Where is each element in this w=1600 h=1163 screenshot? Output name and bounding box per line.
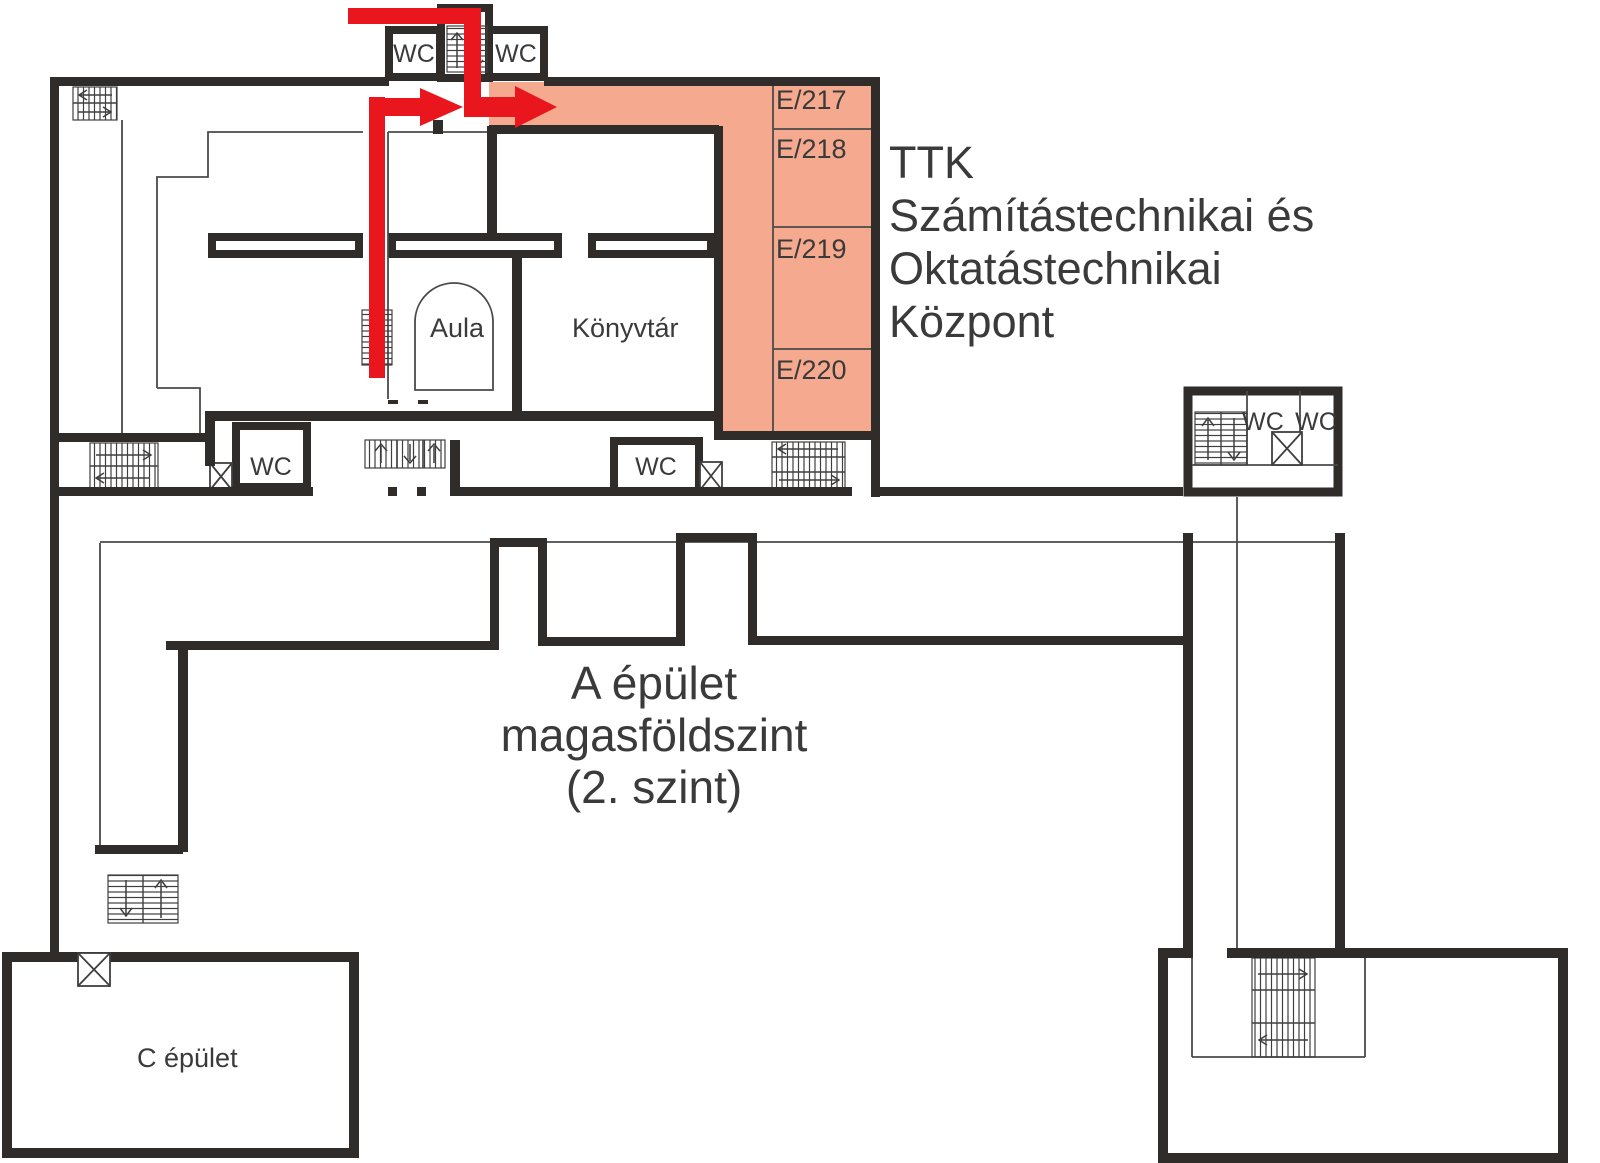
wall-corridor-bottom (489, 125, 719, 134)
wall-top-a (50, 77, 389, 86)
wall-h1 (54, 433, 205, 442)
route-entry-bar (348, 8, 481, 24)
label-e218: E/218 (776, 134, 847, 164)
wall-bottom-c (880, 487, 1183, 496)
elevator-icon-right-block (1272, 432, 1302, 465)
wall-aula-library (512, 253, 522, 415)
label-wc-tower-right: WC (495, 40, 537, 68)
wall-court-1 (166, 641, 499, 650)
door-post-1 (388, 487, 397, 496)
top-left-stair-icon (73, 87, 117, 120)
wall-band-3 (592, 237, 711, 254)
elevator-icon-left (210, 463, 232, 490)
ttk-annotation-line3: Oktatástechnikai (889, 243, 1222, 294)
label-e219: E/219 (776, 234, 847, 264)
wall-h2 (205, 411, 718, 421)
route-arrow1-stem (369, 97, 385, 378)
right-block-stair-icon (1195, 412, 1247, 465)
wall-se-top-b (1227, 948, 1568, 958)
route-arrow1-body (369, 98, 420, 116)
building-title-line1: A épület (571, 657, 737, 709)
door-post-2 (417, 487, 426, 496)
building-title-line2: magasföldszint (501, 709, 808, 761)
ttk-annotation-line2: Számítástechnikai és (889, 190, 1314, 241)
wall-bottom-b (450, 487, 852, 496)
wall-se-left (1158, 948, 1168, 1155)
wall-court-left-h (95, 845, 183, 854)
elevator-icon-c-building (78, 953, 110, 986)
ttk-annotation-line1: TTK (889, 137, 974, 188)
door-dash-1 (388, 400, 398, 404)
room-outlines (7, 8, 1338, 1153)
label-library: Könyvtár (572, 313, 679, 343)
stepped-room-line2 (157, 388, 200, 433)
wall-court-8 (748, 533, 757, 645)
label-wc-right-1: WC (1242, 408, 1284, 436)
label-aula: Aula (430, 313, 485, 343)
wall-w2 (487, 126, 497, 237)
wall-se-top-a (1158, 948, 1193, 958)
label-c-building: C épület (137, 1043, 238, 1073)
main-bottom-left-stair-icon (90, 443, 158, 490)
wall-court-3 (490, 538, 547, 547)
wall-bottom-a (54, 487, 313, 496)
label-wc-bottom-center: WC (635, 453, 677, 481)
wall-se-right (1558, 948, 1568, 1158)
wall-court-9 (748, 636, 1188, 645)
sw-stair-icon (108, 875, 178, 923)
e-wing-stair-icon (772, 442, 845, 488)
wall-rcorridor-left (1183, 533, 1193, 950)
wall-court-5 (538, 637, 685, 646)
wall-court-2 (490, 543, 499, 650)
wall-band-2 (392, 237, 558, 254)
wall-band-1 (212, 237, 359, 254)
ttk-wing (723, 128, 872, 439)
label-wc-tower-left: WC (393, 40, 435, 68)
label-e220: E/220 (776, 355, 847, 385)
entrance-stair-icon (365, 440, 445, 468)
ttk-annotation: TTK Számítástechnikai és Oktatástechnika… (889, 137, 1314, 347)
wall-v450 (450, 440, 460, 496)
wall-jamb (433, 120, 443, 134)
wall-se-bottom (1158, 1153, 1568, 1163)
label-wc-bottom-left: WC (250, 453, 292, 481)
label-wc-right-2: WC (1295, 408, 1337, 436)
wall-v205 (205, 421, 215, 466)
wall-court-6 (676, 538, 685, 646)
wall-rcorridor-right (1335, 533, 1345, 950)
wall-library-right (714, 126, 723, 439)
wall-court-left-l (178, 641, 188, 852)
se-stair-icon (1252, 958, 1315, 1057)
wall-outer-left (50, 77, 59, 952)
building-title: A épület magasföldszint (2. szint) (501, 657, 808, 813)
elevator-icon-center (700, 462, 722, 490)
stepped-room-line (157, 132, 363, 388)
building-title-line3: (2. szint) (566, 761, 742, 813)
floor-plan: E/217 E/218 E/219 E/220 WC WC WC WC WC W… (0, 0, 1600, 1163)
floor-plan-svg: E/217 E/218 E/219 E/220 WC WC WC WC WC W… (0, 0, 1600, 1163)
ttk-annotation-line4: Központ (889, 296, 1055, 347)
route-arrow2-body (464, 97, 515, 117)
wall-court-7 (676, 533, 757, 542)
door-dash-2 (418, 400, 428, 404)
wall-e-wing-bottom (714, 431, 880, 440)
label-e217: E/217 (776, 85, 847, 115)
wall-court-4 (538, 547, 547, 646)
